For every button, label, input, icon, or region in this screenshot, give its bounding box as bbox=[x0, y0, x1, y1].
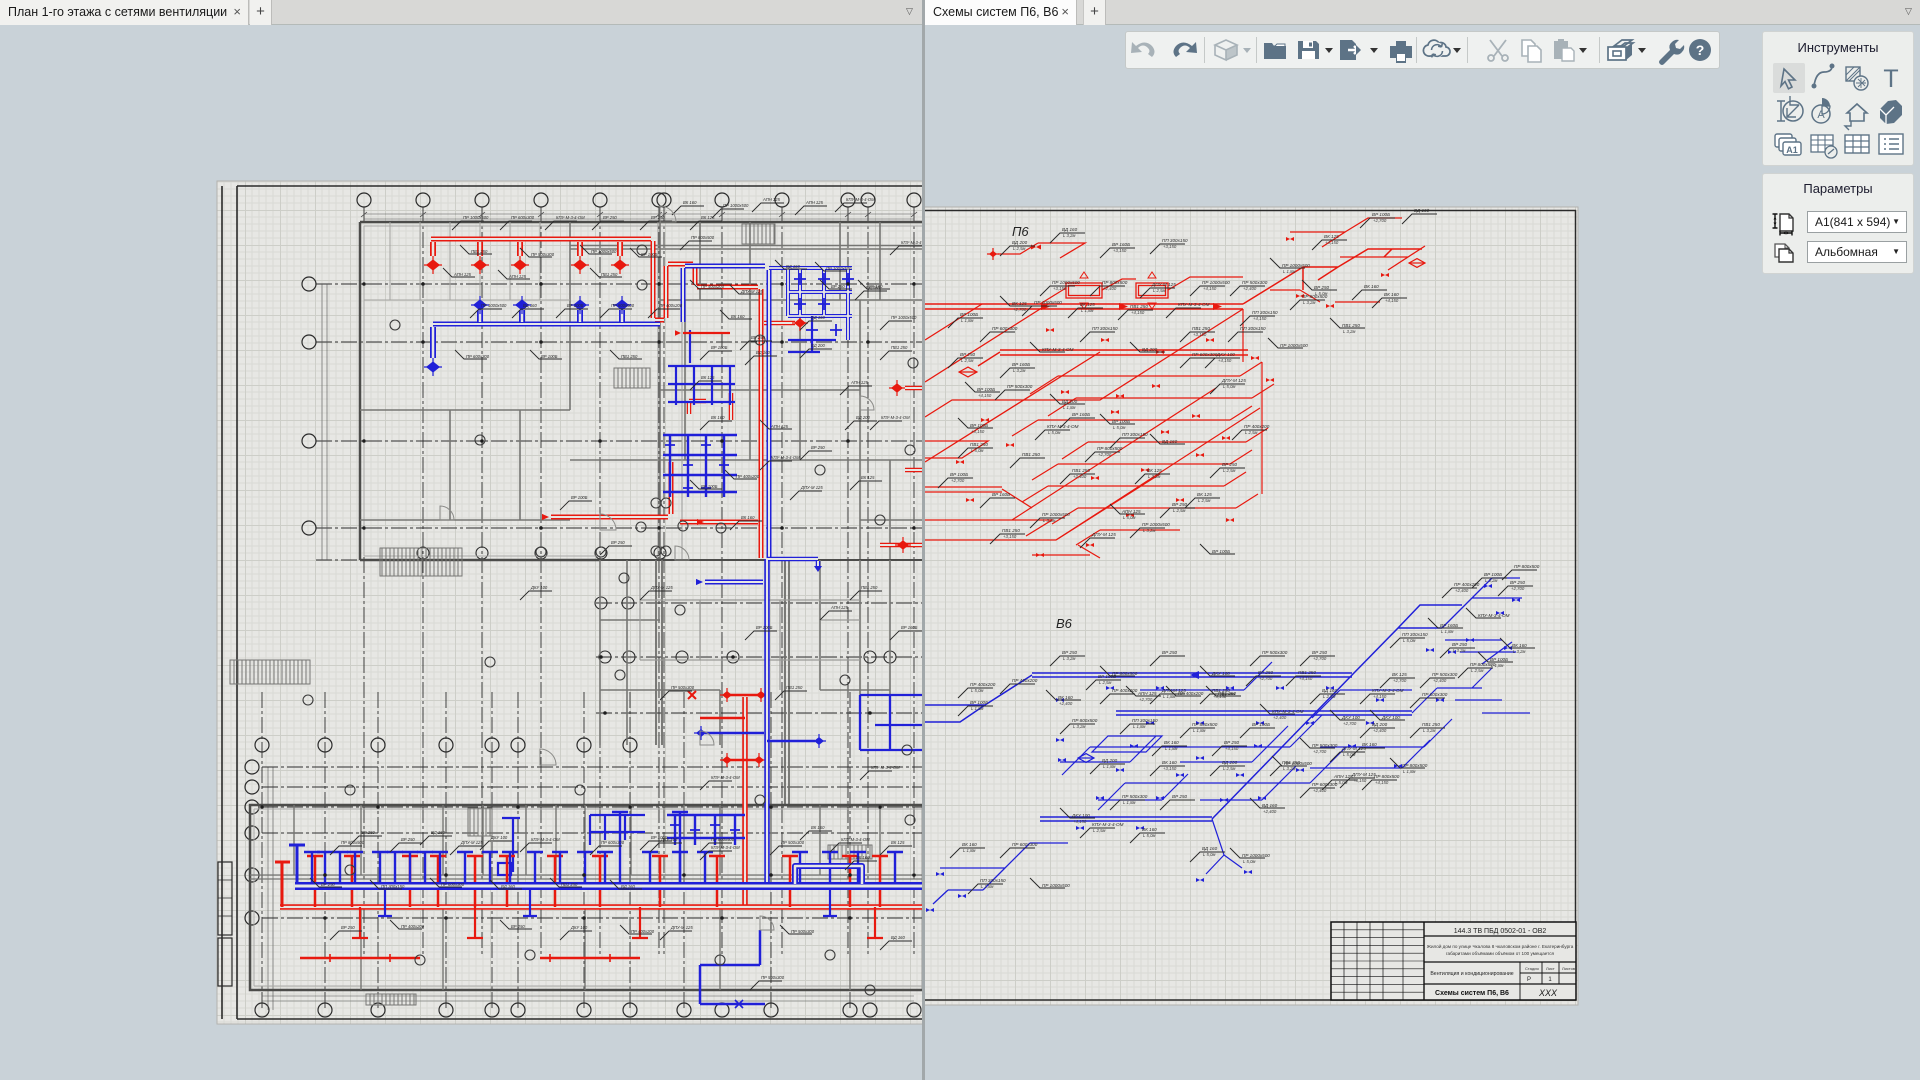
svg-text:ВД 160: ВД 160 bbox=[1262, 803, 1278, 808]
svg-text:ПР 500x300: ПР 500x300 bbox=[781, 840, 805, 845]
svg-text:L 3,2м: L 3,2м bbox=[1073, 724, 1085, 729]
svg-text:Жилой дом по улице Чкалова 8 ч: Жилой дом по улице Чкалова 8 чкаловском … bbox=[1427, 943, 1574, 949]
svg-text:ВР 250: ВР 250 bbox=[1062, 650, 1078, 655]
svg-text:ПР 500x300: ПР 500x300 bbox=[531, 252, 555, 257]
svg-text:ПР 1000x500: ПР 1000x500 bbox=[591, 249, 617, 254]
svg-text:L 3,2м: L 3,2м bbox=[1485, 578, 1497, 583]
svg-text:ВР 100Б: ВР 100Б bbox=[701, 484, 718, 489]
svg-text:ПР 500x300: ПР 500x300 bbox=[761, 975, 785, 980]
svg-text:ПР 1000x500: ПР 1000x500 bbox=[1034, 300, 1062, 305]
svg-text:ПР 400x200: ПР 400x200 bbox=[631, 929, 655, 934]
svg-text:ВД 160: ВД 160 bbox=[1062, 227, 1078, 232]
svg-text:ВР 250: ВР 250 bbox=[1222, 462, 1238, 467]
svg-text:ВР 250: ВР 250 bbox=[401, 837, 415, 842]
svg-text:+2,400: +2,400 bbox=[1263, 809, 1277, 814]
svg-text:ВР 250: ВР 250 bbox=[651, 215, 665, 220]
svg-text:L 3,2м: L 3,2м bbox=[1513, 649, 1525, 654]
svg-text:АПН 125: АПН 125 bbox=[805, 200, 824, 205]
svg-text:L 2,5м: L 2,5м bbox=[1099, 680, 1111, 685]
svg-text:КПУ-М-3-4-ОМ: КПУ-М-3-4-ОМ bbox=[771, 455, 800, 460]
svg-text:ВК 160: ВК 160 bbox=[1362, 742, 1377, 747]
svg-text:ВР 100Б: ВР 100Б bbox=[541, 354, 558, 359]
svg-text:ВД 160: ВД 160 bbox=[811, 315, 825, 320]
svg-text:L 3,2м: L 3,2м bbox=[1283, 766, 1295, 771]
svg-text:ПР 600x300: ПР 600x300 bbox=[511, 215, 535, 220]
svg-text:ПР 1000x500: ПР 1000x500 bbox=[826, 266, 852, 271]
svg-text:ВР 160Б: ВР 160Б bbox=[901, 625, 918, 630]
svg-text:ВР 250: ВР 250 bbox=[1172, 502, 1188, 507]
svg-text:L 2,5м: L 2,5м bbox=[1323, 694, 1335, 699]
svg-text:ПР 500x300: ПР 500x300 bbox=[1312, 743, 1338, 748]
svg-text:+2,700: +2,700 bbox=[1313, 749, 1327, 754]
svg-text:L 1,8м: L 1,8м bbox=[981, 884, 993, 889]
svg-text:ВК 125: ВК 125 bbox=[1392, 672, 1407, 677]
svg-text:П6: П6 bbox=[1012, 224, 1029, 239]
svg-text:L 3,2м: L 3,2м bbox=[1148, 474, 1160, 479]
svg-text:ВК 125: ВК 125 bbox=[1147, 468, 1162, 473]
svg-text:+2,700: +2,700 bbox=[1013, 307, 1027, 312]
svg-text:ВД 200: ВД 200 bbox=[1012, 240, 1028, 245]
svg-text:L 5,0м: L 5,0м bbox=[1048, 430, 1060, 435]
svg-text:КПУ-М-3-4-ОМ: КПУ-М-3-4-ОМ bbox=[871, 765, 900, 770]
svg-text:КПУ-М-3-4-ОМ: КПУ-М-3-4-ОМ bbox=[901, 240, 922, 245]
svg-text:ВР 100Б: ВР 100Б bbox=[1112, 419, 1130, 424]
svg-text:КПУ-М-3-4-ОМ: КПУ-М-3-4-ОМ bbox=[841, 837, 870, 842]
svg-text:+4,150: +4,150 bbox=[1375, 780, 1389, 785]
svg-text:ВД 160: ВД 160 bbox=[866, 285, 880, 290]
svg-text:ВР 250: ВР 250 bbox=[511, 924, 525, 929]
svg-text:ПП 300x150: ПП 300x150 bbox=[381, 884, 405, 889]
svg-text:ВР 100Б: ВР 100Б bbox=[571, 495, 588, 500]
svg-text:L 1,8м: L 1,8м bbox=[1163, 694, 1175, 699]
svg-text:АПН 125: АПН 125 bbox=[830, 605, 849, 610]
svg-text:КПУ-М-3-4-ОМ: КПУ-М-3-4-ОМ bbox=[1042, 347, 1074, 352]
svg-text:АПН 125: АПН 125 bbox=[1137, 691, 1157, 696]
svg-text:ВР 100Б: ВР 100Б bbox=[1098, 674, 1116, 679]
svg-text:ВР 100Б: ВР 100Б bbox=[970, 423, 988, 428]
svg-text:ПП 300x150: ПП 300x150 bbox=[1162, 238, 1188, 243]
svg-text:+2,400: +2,400 bbox=[1433, 678, 1447, 683]
svg-text:Стадия: Стадия bbox=[1525, 966, 1539, 971]
svg-text:ДКУ 100: ДКУ 100 bbox=[1341, 715, 1360, 720]
svg-text:+2,400: +2,400 bbox=[1455, 588, 1469, 593]
svg-text:ВК 125: ВК 125 bbox=[1324, 234, 1339, 239]
svg-text:L 2,5м: L 2,5м bbox=[1223, 468, 1235, 473]
svg-text:КПУ-М-3-4-ОМ: КПУ-М-3-4-ОМ bbox=[881, 415, 910, 420]
svg-text:ПВ1 250: ПВ1 250 bbox=[1422, 722, 1440, 727]
svg-text:ПВ1 250: ПВ1 250 bbox=[1218, 691, 1236, 696]
svg-text:ДКУ 100: ДКУ 100 bbox=[1071, 813, 1090, 818]
svg-text:ВР 250: ВР 250 bbox=[321, 882, 335, 887]
svg-text:ВР 100Б: ВР 100Б bbox=[950, 472, 968, 477]
svg-text:ВД 200: ВД 200 bbox=[1142, 347, 1158, 352]
svg-text:?: ? bbox=[1696, 42, 1705, 58]
svg-text:ДПУ-М 125: ДПУ-М 125 bbox=[800, 485, 823, 490]
svg-text:ВР 250: ВР 250 bbox=[960, 352, 976, 357]
svg-text:L 2,5м: L 2,5м bbox=[1245, 430, 1257, 435]
svg-text:L 5,0м: L 5,0м bbox=[1123, 515, 1135, 520]
svg-text:ПВ1 250: ПВ1 250 bbox=[1002, 528, 1020, 533]
svg-text:ВД 200: ВД 200 bbox=[1102, 758, 1118, 763]
svg-text:ВД 160: ВД 160 bbox=[786, 264, 800, 269]
svg-text:+3,150: +3,150 bbox=[1003, 534, 1017, 539]
svg-text:ПР 800x500: ПР 800x500 bbox=[1514, 564, 1540, 569]
svg-text:+2,700: +2,700 bbox=[1139, 697, 1153, 702]
svg-text:КПУ-М-3-4-ОМ: КПУ-М-3-4-ОМ bbox=[711, 845, 740, 850]
svg-text:L 1,8м: L 1,8м bbox=[1283, 269, 1295, 274]
svg-text:L 1,8м: L 1,8м bbox=[1403, 769, 1415, 774]
svg-text:ВР 160Б: ВР 160Б bbox=[992, 492, 1010, 497]
svg-text:ВД 160: ВД 160 bbox=[1162, 439, 1178, 444]
svg-text:ПР 1000x500: ПР 1000x500 bbox=[481, 303, 507, 308]
svg-text:ВР 100Б: ВР 100Б bbox=[970, 700, 988, 705]
svg-text:ПР 800x500: ПР 800x500 bbox=[691, 235, 715, 240]
svg-text:+4,150: +4,150 bbox=[1373, 694, 1387, 699]
svg-text:ПВ1 250: ПВ1 250 bbox=[561, 882, 578, 887]
svg-text:ВК 160: ВК 160 bbox=[1164, 740, 1179, 745]
svg-text:+2,700: +2,700 bbox=[1313, 656, 1327, 661]
svg-text:ПП 300x150: ПП 300x150 bbox=[1132, 718, 1158, 723]
svg-text:КПУ-М-3-4-ОМ: КПУ-М-3-4-ОМ bbox=[1372, 688, 1404, 693]
svg-text:+2,700: +2,700 bbox=[951, 478, 965, 483]
svg-text:ВР 250: ВР 250 bbox=[1162, 650, 1178, 655]
svg-text:ПР 400x200: ПР 400x200 bbox=[1244, 424, 1270, 429]
svg-text:+2,400: +2,400 bbox=[1103, 286, 1117, 291]
svg-text:Схемы систем П6, В6: Схемы систем П6, В6 bbox=[1435, 990, 1509, 997]
svg-text:ВК 160: ВК 160 bbox=[962, 842, 977, 847]
svg-text:ВК 160: ВК 160 bbox=[731, 314, 745, 319]
svg-text:ПР 800x500: ПР 800x500 bbox=[711, 837, 735, 842]
svg-text:ПР 1000x500: ПР 1000x500 bbox=[1042, 883, 1070, 888]
svg-text:ВР 160Б: ВР 160Б bbox=[1072, 412, 1090, 417]
svg-text:L 2,5м: L 2,5м bbox=[1173, 508, 1185, 513]
svg-text:ПР 1000x500: ПР 1000x500 bbox=[891, 315, 917, 320]
svg-text:ВК 160: ВК 160 bbox=[1364, 284, 1379, 289]
svg-text:ВР 160Б: ВР 160Б bbox=[1440, 623, 1458, 628]
svg-text:+2,700: +2,700 bbox=[1373, 218, 1387, 223]
svg-text:ПР 500x300: ПР 500x300 bbox=[1007, 384, 1033, 389]
svg-text:L 3,2м: L 3,2м bbox=[1043, 518, 1055, 523]
svg-text:ДКУ 100: ДКУ 100 bbox=[570, 925, 588, 930]
svg-text:ВР 160Б: ВР 160Б bbox=[1112, 242, 1130, 247]
svg-text:ДПУ-М 125: ДПУ-М 125 bbox=[1091, 532, 1116, 537]
svg-text:ПР 500x300: ПР 500x300 bbox=[1242, 280, 1268, 285]
svg-text:L 1,8м: L 1,8м bbox=[961, 318, 973, 323]
svg-text:ДПУ-М 125: ДПУ-М 125 bbox=[650, 585, 673, 590]
svg-text:В6: В6 bbox=[1056, 616, 1073, 631]
svg-text:ВК 160: ВК 160 bbox=[741, 515, 755, 520]
svg-text:+4,150: +4,150 bbox=[1385, 298, 1399, 303]
svg-text:ДКУ 100: ДКУ 100 bbox=[530, 585, 548, 590]
svg-text:ВК 160: ВК 160 bbox=[811, 825, 825, 830]
svg-text:ПР 800x500: ПР 800x500 bbox=[1192, 722, 1218, 727]
svg-text:ПП 300x150: ПП 300x150 bbox=[1092, 326, 1118, 331]
svg-text:L 2,5м: L 2,5м bbox=[1153, 288, 1165, 293]
svg-text:ВК 160: ВК 160 bbox=[1512, 643, 1527, 648]
svg-text:ПР 800x500: ПР 800x500 bbox=[1470, 662, 1496, 667]
svg-text:ПР 800x500: ПР 800x500 bbox=[1374, 774, 1400, 779]
svg-text:L 1,8м: L 1,8м bbox=[1063, 405, 1075, 410]
svg-text:+2,700: +2,700 bbox=[1259, 676, 1273, 681]
svg-text:ПВ1 250: ПВ1 250 bbox=[970, 442, 988, 447]
svg-text:ПП 300x150: ПП 300x150 bbox=[1122, 432, 1148, 437]
svg-text:ПР 600x300: ПР 600x300 bbox=[441, 882, 465, 887]
svg-text:144.3 ТВ ПБД 0502-01 - ОВ2: 144.3 ТВ ПБД 0502-01 - ОВ2 bbox=[1454, 928, 1547, 935]
svg-text:ВР 250: ВР 250 bbox=[1314, 285, 1330, 290]
svg-text:ВР 250: ВР 250 bbox=[1224, 740, 1240, 745]
svg-text:ДПУ-М 125: ДПУ-М 125 bbox=[460, 840, 483, 845]
svg-text:АПН 125: АПН 125 bbox=[453, 272, 472, 277]
svg-text:ВД 200: ВД 200 bbox=[1372, 722, 1388, 727]
svg-text:ПВ1 250: ПВ1 250 bbox=[861, 585, 878, 590]
svg-text:ДПУ-М 125: ДПУ-М 125 bbox=[1151, 282, 1176, 287]
svg-text:Р: Р bbox=[1527, 977, 1531, 983]
svg-text:ВР 250: ВР 250 bbox=[603, 215, 617, 220]
svg-text:ПВ1 250: ПВ1 250 bbox=[1342, 323, 1360, 328]
svg-text:ПР 1000x500: ПР 1000x500 bbox=[1202, 280, 1230, 285]
svg-text:ВК 160: ВК 160 bbox=[856, 855, 870, 860]
svg-text:ВД 200: ВД 200 bbox=[856, 415, 870, 420]
svg-text:ВР 100Б: ВР 100Б bbox=[711, 345, 728, 350]
svg-text:ПП 300x150: ПП 300x150 bbox=[980, 878, 1006, 883]
svg-text:+2,400: +2,400 bbox=[1273, 715, 1287, 720]
svg-text:L 3,2м: L 3,2м bbox=[1143, 528, 1155, 533]
svg-text:L 5,0м: L 5,0м bbox=[1243, 859, 1255, 864]
svg-text:L 5,0м: L 5,0м bbox=[1113, 425, 1125, 430]
svg-text:ДКУ 100: ДКУ 100 bbox=[1211, 671, 1230, 676]
svg-text:+2,400: +2,400 bbox=[1373, 728, 1387, 733]
svg-text:L 2,5м: L 2,5м bbox=[1198, 498, 1210, 503]
svg-text:+2,700: +2,700 bbox=[1393, 678, 1407, 683]
svg-text:ВД 200: ВД 200 bbox=[1222, 760, 1238, 765]
svg-text:+3,150: +3,150 bbox=[1163, 244, 1177, 249]
svg-text:ПР 800x500: ПР 800x500 bbox=[1402, 763, 1428, 768]
svg-text:+4,150: +4,150 bbox=[1325, 240, 1339, 245]
svg-text:ПР 1000x500: ПР 1000x500 bbox=[1042, 512, 1070, 517]
svg-text:L 2,5м: L 2,5м bbox=[1223, 766, 1235, 771]
svg-text:+3,150: +3,150 bbox=[1053, 286, 1067, 291]
svg-text:Лист: Лист bbox=[1546, 966, 1555, 971]
svg-text:ДКУ 100: ДКУ 100 bbox=[1216, 352, 1235, 357]
svg-text:XXX: XXX bbox=[1538, 988, 1558, 998]
svg-text:ВД 200: ВД 200 bbox=[1062, 399, 1078, 404]
svg-text:L 1,8м: L 1,8м bbox=[1165, 746, 1177, 751]
svg-text:ПР 600x300: ПР 600x300 bbox=[1312, 782, 1338, 787]
svg-text:ВР 250: ВР 250 bbox=[831, 284, 845, 289]
svg-text:L 5,0м: L 5,0м bbox=[1223, 384, 1235, 389]
svg-text:ВР 100Б: ВР 100Б bbox=[1484, 572, 1502, 577]
svg-text:+2,400: +2,400 bbox=[1243, 286, 1257, 291]
svg-text:ПР 800x500: ПР 800x500 bbox=[1072, 718, 1098, 723]
svg-text:ПП 300x150: ПП 300x150 bbox=[1252, 310, 1278, 315]
svg-text:ВД 160: ВД 160 bbox=[523, 303, 537, 308]
svg-text:АПН 125: АПН 125 bbox=[1121, 509, 1141, 514]
svg-text:АПН 125: АПН 125 bbox=[762, 197, 781, 202]
svg-text:ПР 400x200: ПР 400x200 bbox=[970, 682, 996, 687]
svg-text:ВД 160: ВД 160 bbox=[756, 350, 770, 355]
svg-text:L 5,0м: L 5,0м bbox=[1203, 852, 1215, 857]
svg-text:+2,700: +2,700 bbox=[1511, 586, 1525, 591]
svg-text:АПН 125: АПН 125 bbox=[770, 424, 789, 429]
svg-text:ВД 160: ВД 160 bbox=[1202, 846, 1218, 851]
svg-text:L 2,5м: L 2,5м bbox=[961, 358, 973, 363]
svg-text:L 2,5м: L 2,5м bbox=[1093, 828, 1105, 833]
svg-text:КПУ-М-3-4-ОМ: КПУ-М-3-4-ОМ bbox=[556, 215, 585, 220]
svg-text:ДПУ-М 125: ДПУ-М 125 bbox=[670, 925, 693, 930]
svg-text:ПР 400x200: ПР 400x200 bbox=[736, 474, 760, 479]
svg-text:ПВ1 250: ПВ1 250 bbox=[1022, 452, 1040, 457]
svg-text:ПВ1 250: ПВ1 250 bbox=[471, 249, 488, 254]
svg-text:ПР 400x200: ПР 400x200 bbox=[1178, 691, 1204, 696]
svg-text:ДПУ-М 125: ДПУ-М 125 bbox=[740, 289, 763, 294]
svg-text:ПВ1 250: ПВ1 250 bbox=[601, 272, 618, 277]
svg-text:ВД 160: ВД 160 bbox=[431, 830, 445, 835]
svg-text:A: A bbox=[1817, 109, 1825, 121]
svg-text:+4,150: +4,150 bbox=[1073, 819, 1087, 824]
svg-text:L 1,8м: L 1,8м bbox=[1081, 308, 1093, 313]
svg-text:ПР 400x200: ПР 400x200 bbox=[401, 924, 425, 929]
svg-text:+4,150: +4,150 bbox=[978, 393, 992, 398]
svg-text:ПР 800x500: ПР 800x500 bbox=[611, 303, 635, 308]
svg-text:ПР 400x200: ПР 400x200 bbox=[659, 303, 683, 308]
svg-text:КПУ-М-3-4-ОМ: КПУ-М-3-4-ОМ bbox=[1178, 302, 1210, 307]
svg-text:ВК 160: ВК 160 bbox=[1142, 827, 1157, 832]
svg-text:ПР 600x300: ПР 600x300 bbox=[1192, 352, 1218, 357]
svg-text:L 3,2м: L 3,2м bbox=[1063, 233, 1075, 238]
svg-text:габаритами объёмами объёмом от: габаритами объёмами объёмом от 100 умеща… bbox=[1446, 951, 1555, 956]
svg-text:ВК 160: ВК 160 bbox=[1384, 292, 1399, 297]
svg-text:+3,150: +3,150 bbox=[1163, 766, 1177, 771]
svg-text:L 1,8м: L 1,8м bbox=[1123, 800, 1135, 805]
svg-text:ПР 500x300: ПР 500x300 bbox=[791, 929, 815, 934]
svg-text:ВК 125: ВК 125 bbox=[701, 375, 715, 380]
svg-text:ПР 600x300: ПР 600x300 bbox=[466, 354, 490, 359]
svg-text:+3,150: +3,150 bbox=[1193, 332, 1207, 337]
svg-text:+2,700: +2,700 bbox=[1098, 452, 1112, 457]
svg-text:+4,150: +4,150 bbox=[1218, 358, 1232, 363]
svg-text:ПР 1000x500: ПР 1000x500 bbox=[1282, 263, 1310, 268]
svg-text:КПУ-М-3-4-ОМ: КПУ-М-3-4-ОМ bbox=[1478, 613, 1510, 618]
svg-text:+2,400: +2,400 bbox=[1073, 474, 1087, 479]
svg-text:ПР 500x300: ПР 500x300 bbox=[1262, 650, 1288, 655]
svg-text:ПР 600x300: ПР 600x300 bbox=[1012, 842, 1038, 847]
svg-text:ПВ1 250: ПВ1 250 bbox=[1130, 304, 1148, 309]
svg-text:L 1,8м: L 1,8м bbox=[963, 848, 975, 853]
svg-text:L 1,8м: L 1,8м bbox=[1441, 629, 1453, 634]
svg-text:ПР 800x500: ПР 800x500 bbox=[1102, 280, 1128, 285]
svg-text:ВР 100Б: ВР 100Б bbox=[960, 312, 978, 317]
svg-text:ВР 250: ВР 250 bbox=[361, 830, 375, 835]
svg-text:ВР 100Б: ВР 100Б bbox=[567, 303, 584, 308]
svg-text:ПВ1 250: ПВ1 250 bbox=[786, 685, 803, 690]
svg-text:ПР 400x200: ПР 400x200 bbox=[1112, 688, 1138, 693]
svg-text:ПР 1000x500: ПР 1000x500 bbox=[1242, 853, 1270, 858]
svg-text:ДКУ 100: ДКУ 100 bbox=[1381, 715, 1400, 720]
svg-text:+2,400: +2,400 bbox=[1313, 788, 1327, 793]
svg-text:L 3,2м: L 3,2м bbox=[1453, 648, 1465, 653]
svg-text:+3,150: +3,150 bbox=[1113, 248, 1127, 253]
svg-text:ДКУ 100: ДКУ 100 bbox=[490, 835, 508, 840]
svg-text:ПР 1000x500: ПР 1000x500 bbox=[1052, 280, 1080, 285]
svg-text:ДПУ-М 125: ДПУ-М 125 bbox=[1351, 772, 1376, 777]
svg-text:L 1,8м: L 1,8м bbox=[1193, 728, 1205, 733]
svg-text:+4,150: +4,150 bbox=[1225, 746, 1239, 751]
svg-text:L 5,0м: L 5,0м bbox=[1403, 638, 1415, 643]
svg-text:ПР 400x200: ПР 400x200 bbox=[701, 284, 725, 289]
svg-text:ВД 160: ВД 160 bbox=[1414, 208, 1430, 213]
svg-text:КПУ-М-3-4-ОМ: КПУ-М-3-4-ОМ bbox=[711, 775, 740, 780]
svg-text:ПР 1000x500: ПР 1000x500 bbox=[1284, 761, 1312, 766]
svg-text:КПУ-М-3-4-ОМ: КПУ-М-3-4-ОМ bbox=[1092, 822, 1124, 827]
svg-text:ПВ1 250: ПВ1 250 bbox=[1298, 670, 1316, 675]
svg-text:ВР 250: ВР 250 bbox=[811, 445, 825, 450]
svg-text:ВД 160: ВД 160 bbox=[501, 884, 515, 889]
svg-text:КПУ-М-3-4-ОМ: КПУ-М-3-4-ОМ bbox=[846, 197, 875, 202]
svg-text:ВР 250: ВР 250 bbox=[1452, 642, 1468, 647]
svg-text:ПР 800x500: ПР 800x500 bbox=[1302, 294, 1328, 299]
svg-text:ПВ1 250: ПВ1 250 bbox=[891, 345, 908, 350]
svg-text:ПВ1 250: ПВ1 250 bbox=[621, 354, 638, 359]
svg-text:L 5,0м: L 5,0м bbox=[971, 688, 983, 693]
svg-text:ВР 100Б: ВР 100Б bbox=[977, 387, 995, 392]
svg-text:ПВ1 250: ПВ1 250 bbox=[1072, 468, 1090, 473]
svg-text:ПР 600x300: ПР 600x300 bbox=[992, 326, 1018, 331]
svg-text:L 2,5м: L 2,5м bbox=[1013, 246, 1025, 251]
svg-text:ВР 100Б: ВР 100Б bbox=[1212, 549, 1230, 554]
svg-text:L 3,2м: L 3,2м bbox=[1013, 368, 1025, 373]
svg-text:ВР 250: ВР 250 bbox=[1312, 650, 1328, 655]
svg-text:Вентиляция и кондиционирование: Вентиляция и кондиционирование bbox=[1430, 971, 1513, 977]
svg-text:ВР 250: ВР 250 bbox=[341, 925, 355, 930]
svg-text:ПП 300x150: ПП 300x150 bbox=[1240, 326, 1266, 331]
svg-text:L 3,2м: L 3,2м bbox=[1063, 656, 1075, 661]
svg-text:L 5,0м: L 5,0м bbox=[971, 448, 983, 453]
svg-text:ВД 160: ВД 160 bbox=[891, 935, 905, 940]
svg-text:L 5,0м: L 5,0м bbox=[1335, 780, 1347, 785]
svg-text:ПР 1000x500: ПР 1000x500 bbox=[463, 215, 489, 220]
svg-text:A1: A1 bbox=[1786, 145, 1798, 155]
svg-text:+4,150: +4,150 bbox=[1131, 310, 1145, 315]
svg-text:ВК 125: ВК 125 bbox=[1197, 492, 1212, 497]
svg-text:ПР 500x300: ПР 500x300 bbox=[671, 685, 695, 690]
svg-text:L 3,2м: L 3,2м bbox=[1303, 300, 1315, 305]
svg-text:АПН 125: АПН 125 bbox=[850, 380, 869, 385]
svg-text:ВР 100Б: ВР 100Б bbox=[1372, 212, 1390, 217]
svg-text:ВД 160: ВД 160 bbox=[621, 884, 635, 889]
svg-text:L 1,8м: L 1,8м bbox=[971, 706, 983, 711]
svg-text:L 5,0м: L 5,0м bbox=[1143, 833, 1155, 838]
svg-text:ВР 250: ВР 250 bbox=[1510, 580, 1526, 585]
svg-text:ВР 250: ВР 250 bbox=[611, 540, 625, 545]
svg-text:+4,150: +4,150 bbox=[1253, 316, 1267, 321]
svg-text:ПП 300x150: ПП 300x150 bbox=[1402, 632, 1428, 637]
svg-text:ВР 250: ВР 250 bbox=[1172, 794, 1188, 799]
svg-text:ВК 160: ВК 160 bbox=[1058, 695, 1073, 700]
svg-text:ВР 250: ВР 250 bbox=[1258, 670, 1274, 675]
svg-text:КПУ-М-3-4-ОМ: КПУ-М-3-4-ОМ bbox=[531, 837, 560, 842]
svg-text:КПУ-М-3-4-ОМ: КПУ-М-3-4-ОМ bbox=[1272, 709, 1304, 714]
svg-text:ПР 800x500: ПР 800x500 bbox=[1097, 446, 1123, 451]
svg-text:ПР 600x300: ПР 600x300 bbox=[1422, 692, 1448, 697]
svg-text:ВК 160: ВК 160 bbox=[683, 200, 697, 205]
svg-text:L 1,8м: L 1,8м bbox=[1103, 764, 1115, 769]
svg-text:+2,700: +2,700 bbox=[1343, 721, 1357, 726]
svg-text:L 2,5м: L 2,5м bbox=[1471, 668, 1483, 673]
svg-text:ВР 100Б: ВР 100Б bbox=[756, 625, 773, 630]
svg-text:АПН 125: АПН 125 bbox=[508, 274, 527, 279]
svg-text:АПН 125: АПН 125 bbox=[1333, 774, 1353, 779]
svg-text:ПР 600x300: ПР 600x300 bbox=[601, 840, 625, 845]
